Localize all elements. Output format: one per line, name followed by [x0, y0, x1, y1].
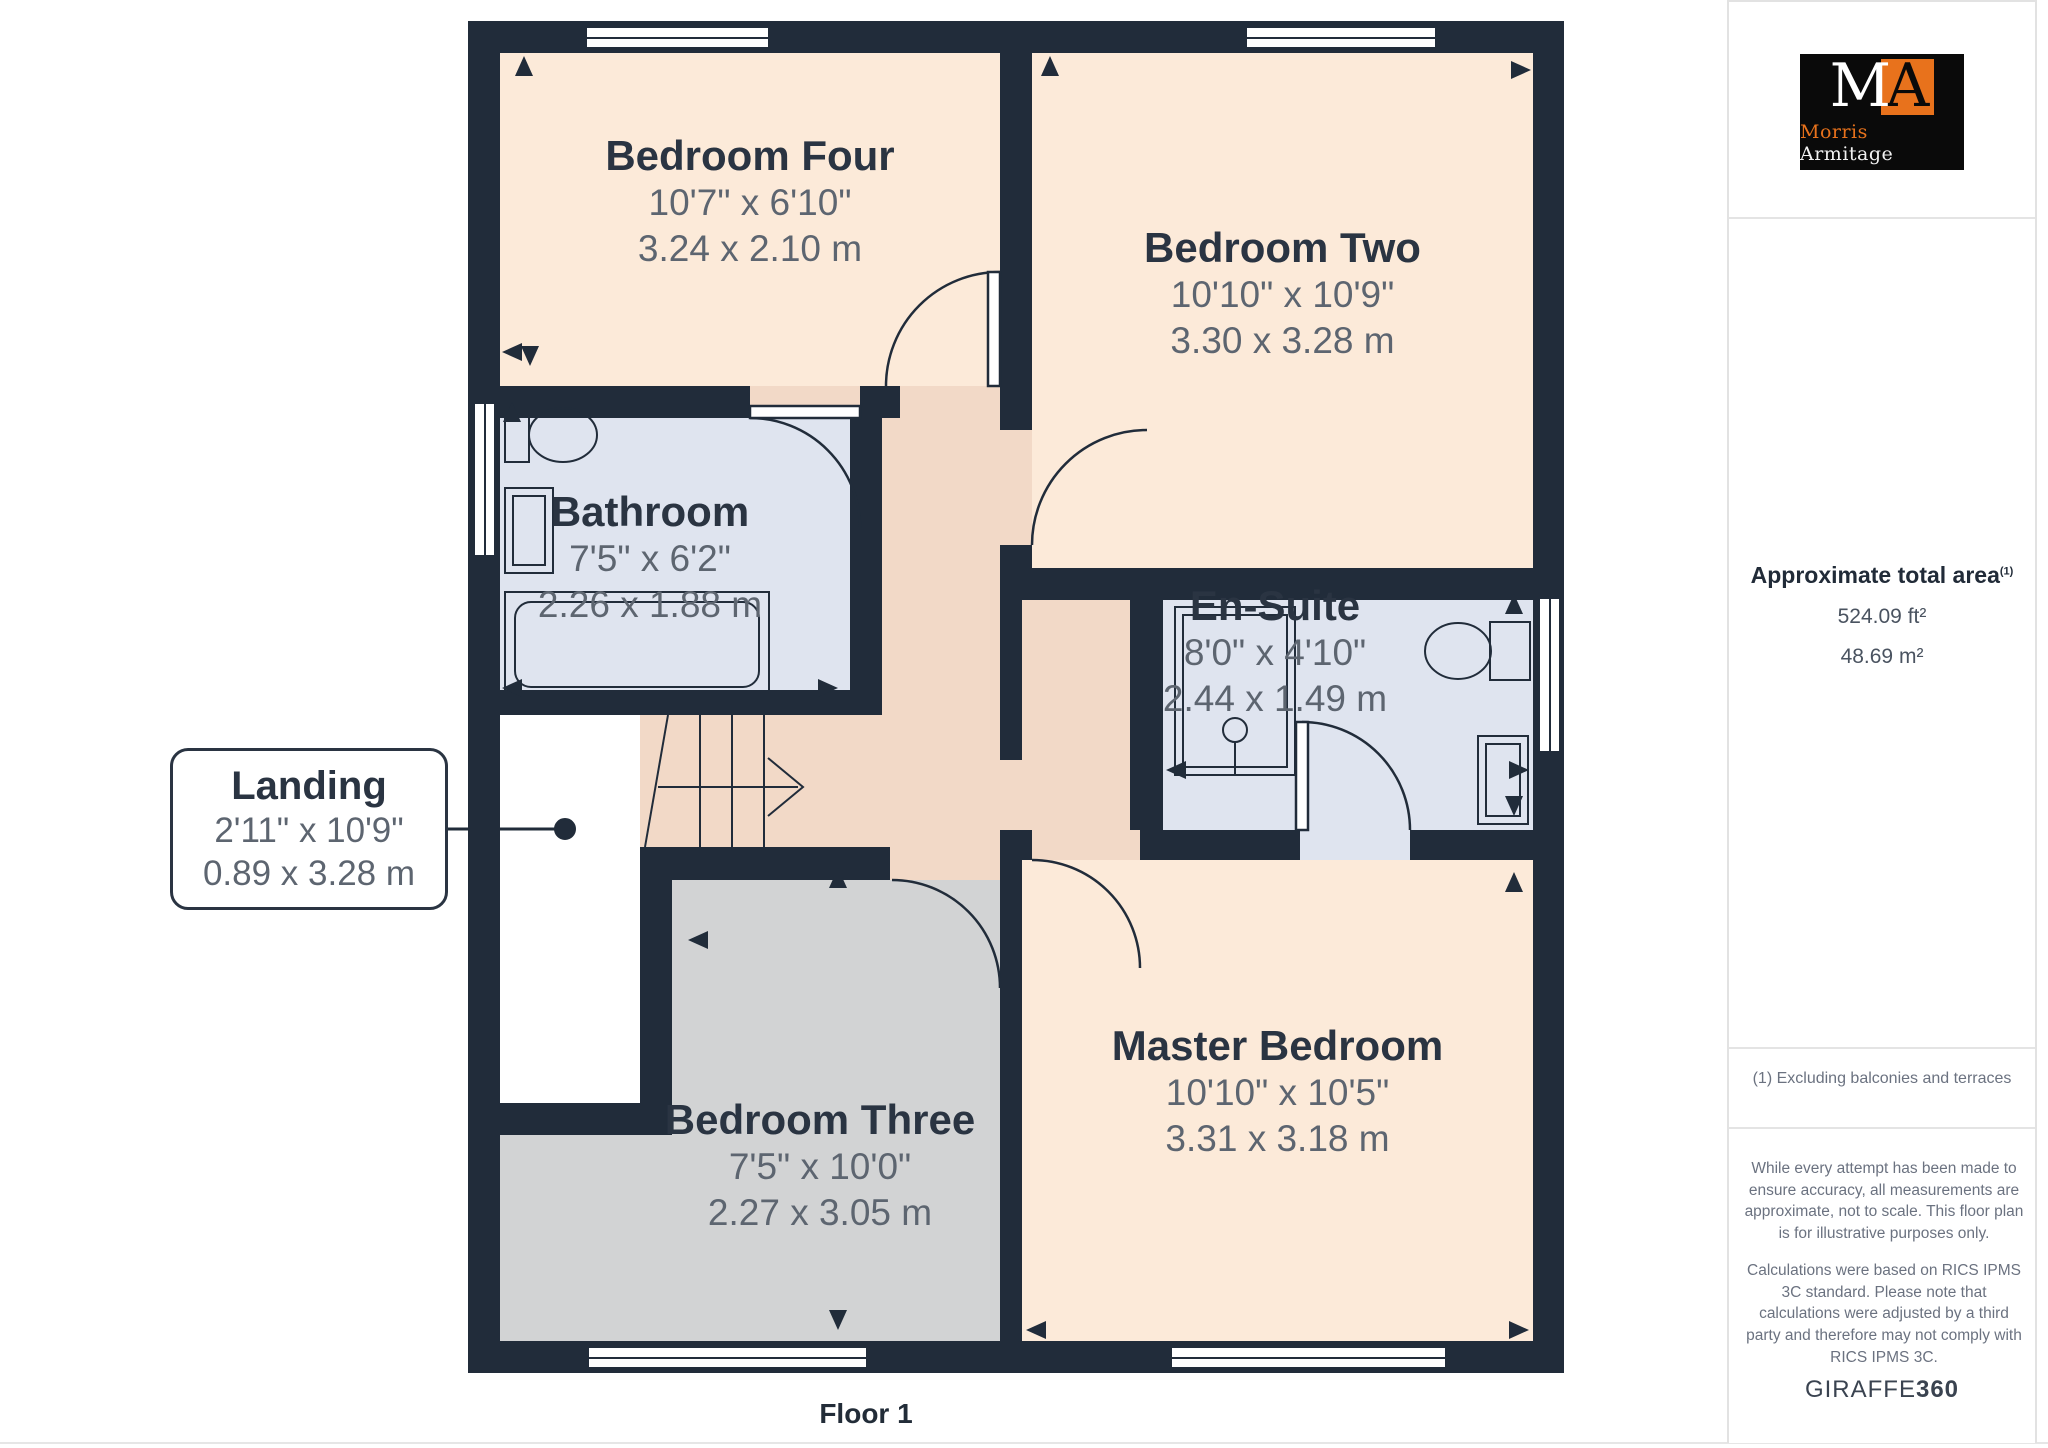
- info-sidebar: M A Morris Armitage Approximate total ar…: [1727, 0, 2037, 1443]
- room-dims-imperial: 2'11" x 10'9": [173, 809, 445, 852]
- label-en-suite: En-Suite 8'0" x 4'10" 2.44 x 1.49 m: [1060, 582, 1490, 722]
- label-bathroom: Bathroom 7'5" x 6'2" 2.26 x 1.88 m: [450, 488, 850, 628]
- stairs-floor: [640, 715, 882, 847]
- floor-label: Floor 1: [468, 1398, 1264, 1430]
- window: [1538, 597, 1561, 753]
- door-gap-bedroom-four: [900, 386, 1000, 418]
- area-footnote: (1) Excluding balconies and terraces: [1729, 1070, 2035, 1088]
- room-dims-metric: 3.30 x 3.28 m: [1032, 318, 1533, 364]
- logo-name: Morris Armitage: [1800, 121, 1964, 165]
- disclaimer-paragraph-1: While every attempt has been made to ens…: [1744, 1158, 2024, 1245]
- disclaimer-paragraph-2: Calculations were based on RICS IPMS 3C …: [1744, 1260, 2024, 1368]
- room-dims-metric: 3.31 x 3.18 m: [1022, 1116, 1533, 1162]
- total-area-title: Approximate total area(1): [1729, 562, 2035, 589]
- door-gap-bedroom-three: [890, 847, 1000, 880]
- total-area-title-text: Approximate total area: [1751, 562, 2000, 588]
- giraffe360-logo-360: 360: [1916, 1376, 1959, 1403]
- door-gap-en-suite: [1300, 830, 1410, 860]
- room-name: Bedroom Two: [1032, 224, 1533, 272]
- room-dims-imperial: 10'10" x 10'9": [1032, 272, 1533, 318]
- label-master-bedroom: Master Bedroom 10'10" x 10'5" 3.31 x 3.1…: [1022, 1022, 1533, 1162]
- room-dims-metric: 3.24 x 2.10 m: [500, 226, 1000, 272]
- footnote-marker: (1): [2000, 565, 2013, 577]
- room-dims-metric: 2.27 x 3.05 m: [570, 1190, 1070, 1236]
- room-dims-metric: 0.89 x 3.28 m: [173, 852, 445, 895]
- label-bedroom-two: Bedroom Two 10'10" x 10'9" 3.30 x 3.28 m: [1032, 224, 1533, 364]
- room-name: En-Suite: [1060, 582, 1490, 630]
- room-dims-metric: 2.44 x 1.49 m: [1060, 676, 1490, 722]
- sidebar-divider: [1729, 1127, 2035, 1129]
- room-landing-floor: [500, 715, 640, 1103]
- door-gap-corridor-nook: [1000, 760, 1022, 830]
- window: [1245, 26, 1437, 49]
- giraffe360-logo: GIRAFFE360: [1729, 1376, 2035, 1404]
- room-dims-imperial: 10'7" x 6'10": [500, 180, 1000, 226]
- room-dims-imperial: 7'5" x 10'0": [570, 1144, 1070, 1190]
- room-dims-imperial: 8'0" x 4'10": [1060, 630, 1490, 676]
- label-bedroom-three: Bedroom Three 7'5" x 10'0" 2.27 x 3.05 m: [570, 1096, 1070, 1236]
- sidebar-divider: [1729, 1047, 2035, 1049]
- logo-monogram: M A: [1830, 59, 1935, 115]
- total-area-sqft: 524.09 ft²: [1729, 605, 2035, 629]
- room-name: Bathroom: [450, 488, 850, 536]
- sidebar-divider: [1729, 217, 2035, 219]
- room-dims-imperial: 10'10" x 10'5": [1022, 1070, 1533, 1116]
- total-area-block: Approximate total area(1) 524.09 ft² 48.…: [1729, 562, 2035, 669]
- total-area-sqm: 48.69 m²: [1729, 645, 2035, 669]
- label-bedroom-four: Bedroom Four 10'7" x 6'10" 3.24 x 2.10 m: [500, 132, 1000, 272]
- window: [585, 26, 770, 49]
- room-name: Bedroom Four: [500, 132, 1000, 180]
- room-name: Landing: [173, 763, 445, 809]
- door-gap-bedroom-two: [1000, 430, 1032, 545]
- window: [587, 1346, 868, 1369]
- room-dims-metric: 2.26 x 1.88 m: [450, 582, 850, 628]
- door-gap-master-bedroom: [1032, 830, 1140, 860]
- floorplan-page: Bedroom Four 10'7" x 6'10" 3.24 x 2.10 m…: [0, 0, 2048, 1448]
- room-name: Bedroom Three: [570, 1096, 1070, 1144]
- morris-armitage-logo: M A Morris Armitage: [1800, 54, 1964, 170]
- corridor-floor: [882, 418, 1000, 847]
- room-name: Master Bedroom: [1022, 1022, 1533, 1070]
- logo-name-first: Morris: [1800, 121, 1868, 143]
- logo-name-second: Armitage: [1800, 143, 1893, 165]
- logo-monogram-m: M: [1830, 59, 1891, 113]
- landing-callout: Landing 2'11" x 10'9" 0.89 x 3.28 m: [170, 748, 448, 910]
- giraffe360-logo-text: GIRAFFE: [1805, 1376, 1916, 1403]
- window: [1170, 1346, 1447, 1369]
- room-dims-imperial: 7'5" x 6'2": [450, 536, 850, 582]
- door-gap-bathroom: [750, 386, 860, 418]
